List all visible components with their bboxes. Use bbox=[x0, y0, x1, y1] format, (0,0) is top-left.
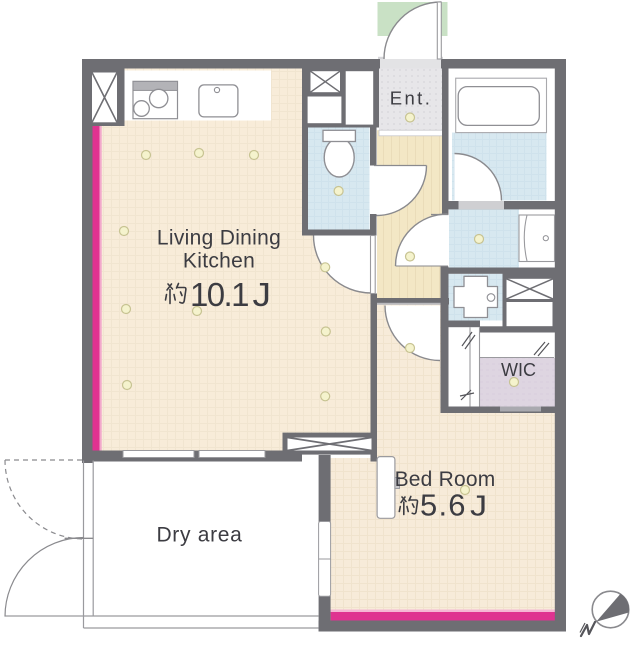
svg-text:Kitchen: Kitchen bbox=[183, 250, 255, 273]
svg-text:J: J bbox=[253, 277, 271, 314]
svg-text:Living Dining: Living Dining bbox=[157, 227, 281, 250]
svg-text:Ent.: Ent. bbox=[390, 88, 433, 109]
svg-text:10.1: 10.1 bbox=[190, 276, 248, 313]
svg-text:Dry area: Dry area bbox=[156, 524, 242, 547]
svg-text:5.6: 5.6 bbox=[420, 488, 467, 523]
svg-text:J: J bbox=[470, 489, 487, 522]
svg-text:WIC: WIC bbox=[501, 360, 536, 380]
